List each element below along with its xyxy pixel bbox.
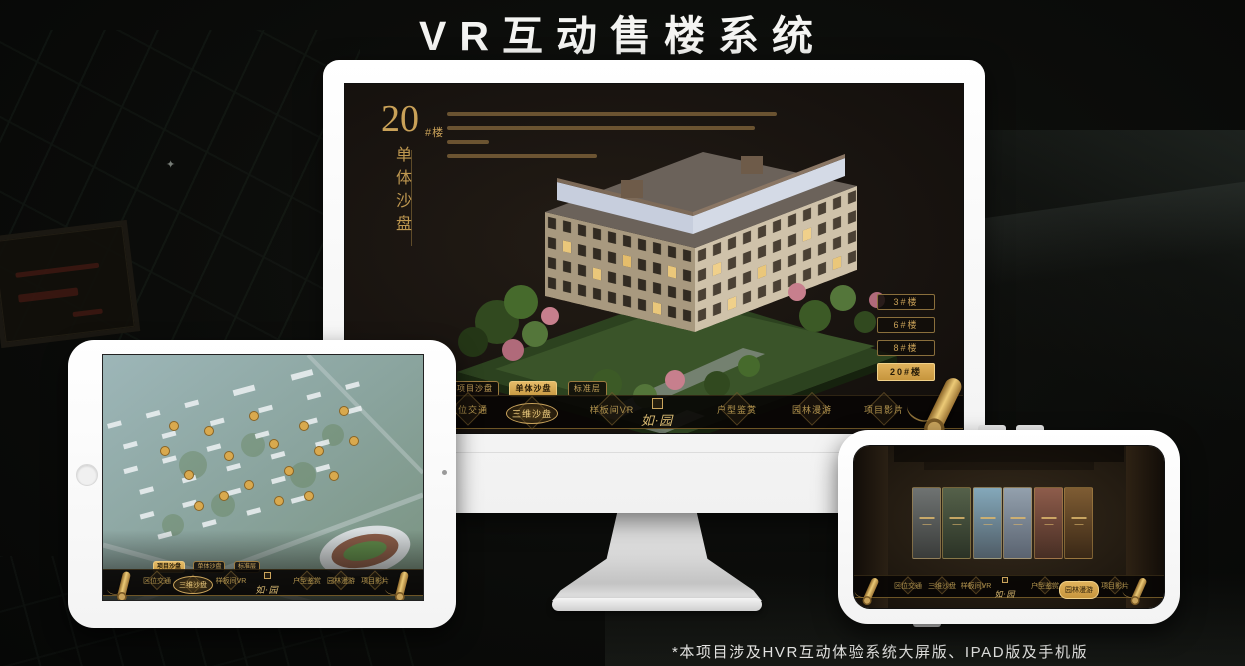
panel-caption-marks — [919, 517, 934, 519]
panel-caption-marks — [949, 517, 964, 519]
brand-seal-icon — [264, 572, 271, 579]
background-photo-highlight — [983, 182, 1245, 289]
nav-item-showroom-vr[interactable]: 样板间VR — [211, 576, 251, 586]
tablet-camera-icon — [442, 470, 447, 475]
scene-panel-3[interactable] — [973, 487, 1002, 559]
background-buildings-photo — [983, 130, 1245, 420]
phone-app-screen: 区位交通 三维沙盘 样板间VR 如·园 户型鉴赏 园林漫游 项目影片 — [854, 446, 1164, 608]
phone-bottom-nav: 区位交通 三维沙盘 样板间VR 如·园 户型鉴赏 园林漫游 项目影片 — [854, 575, 1164, 598]
plaque-text-line — [72, 309, 102, 318]
scroll-ornament-icon[interactable] — [117, 571, 131, 599]
nav-item-3d-sandtable[interactable]: 三维沙盘 — [173, 576, 213, 594]
brand-logo: 如·园 — [627, 398, 687, 430]
background-star-marker: ✦ — [166, 158, 175, 171]
plaque-text-line — [15, 263, 99, 278]
floor-button-20[interactable]: 20#楼 — [877, 363, 935, 381]
monitor-stand-base — [552, 598, 762, 611]
scene-panel-1[interactable] — [912, 487, 941, 559]
panel-caption-marks — [1071, 517, 1086, 519]
pergola-beam — [894, 446, 1124, 462]
promo-poster: ✦ VR互动售楼系统 *本项目涉及HVR互动体验系统大屏版、IPAD版及手机版 … — [0, 0, 1245, 666]
poster-footnote: *本项目涉及HVR互动体验系统大屏版、IPAD版及手机版 — [672, 641, 1088, 662]
scene-panel-2[interactable] — [942, 487, 971, 559]
panel-caption-marks — [980, 517, 995, 519]
tablet-app-screen: 项目沙盘 单体沙盘 标准层 区位交通 三维沙盘 样板间VR 如·园 户型鉴赏 园… — [103, 355, 423, 600]
scene-panel-6[interactable] — [1064, 487, 1093, 559]
brand-logo: 如·园 — [247, 572, 287, 598]
background-map-texture — [0, 30, 360, 340]
tablet-frame: 项目沙盘 单体沙盘 标准层 区位交通 三维沙盘 样板间VR 如·园 户型鉴赏 园… — [68, 340, 456, 628]
phone-frame: 区位交通 三维沙盘 样板间VR 如·园 户型鉴赏 园林漫游 项目影片 — [838, 430, 1180, 624]
floor-button-6[interactable]: 6#楼 — [877, 317, 935, 333]
panel-caption-marks — [1010, 517, 1025, 519]
scroll-ornament-icon[interactable] — [395, 571, 409, 599]
scene-panel-4[interactable] — [1003, 487, 1032, 559]
scene-panel-5[interactable] — [1034, 487, 1063, 559]
brand-logo: 如·园 — [985, 577, 1025, 602]
monitor-stand-neck — [552, 513, 762, 601]
floor-button-3[interactable]: 3#楼 — [877, 294, 935, 310]
floor-selector: 3#楼 6#楼 8#楼 20#楼 — [877, 294, 935, 388]
background-certificate-plaque — [0, 220, 140, 348]
plaque-seal-text — [18, 287, 79, 302]
brand-seal-icon — [652, 398, 663, 409]
floor-button-8[interactable]: 8#楼 — [877, 340, 935, 356]
nav-item-unit-gallery[interactable]: 户型鉴赏 — [700, 403, 774, 416]
pergola-beam — [924, 462, 1094, 470]
panel-caption-marks — [1041, 517, 1056, 519]
nav-item-garden-roam[interactable]: 园林漫游 — [1057, 581, 1101, 599]
poster-title: VR互动售楼系统 — [0, 2, 1245, 62]
tablet-home-button[interactable] — [76, 464, 98, 486]
tablet-bottom-nav: 区位交通 三维沙盘 样板间VR 如·园 户型鉴赏 园林漫游 项目影片 — [103, 569, 423, 596]
brand-seal-icon — [1002, 577, 1008, 583]
nav-item-3d-sandtable[interactable]: 三维沙盘 — [495, 403, 569, 424]
nav-item-location[interactable]: 区位交通 — [137, 576, 177, 586]
nav-item-garden-roam[interactable]: 园林漫游 — [775, 403, 849, 416]
